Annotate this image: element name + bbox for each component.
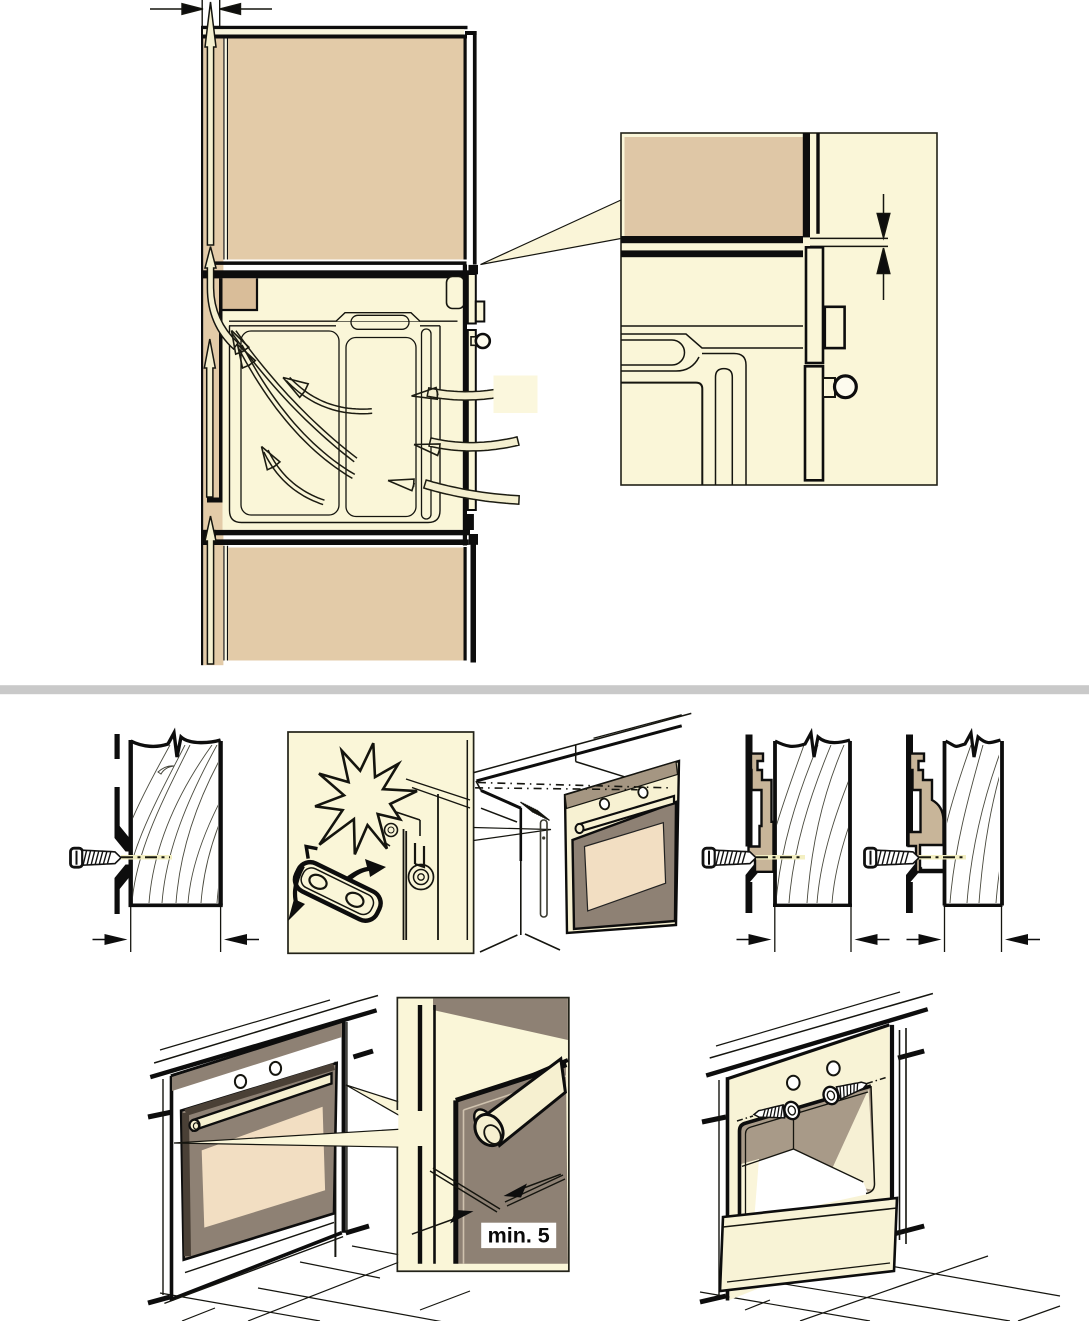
svg-text:min. 5: min. 5 [488, 1224, 550, 1248]
